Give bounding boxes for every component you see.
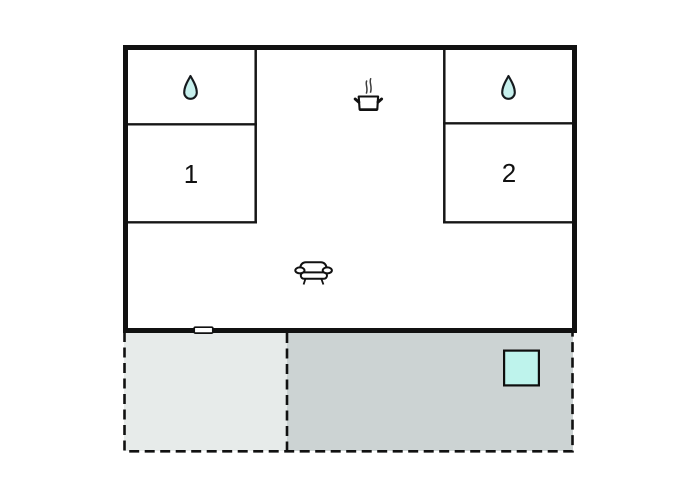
svg-text:2: 2 (502, 158, 516, 188)
svg-text:1: 1 (184, 159, 198, 189)
